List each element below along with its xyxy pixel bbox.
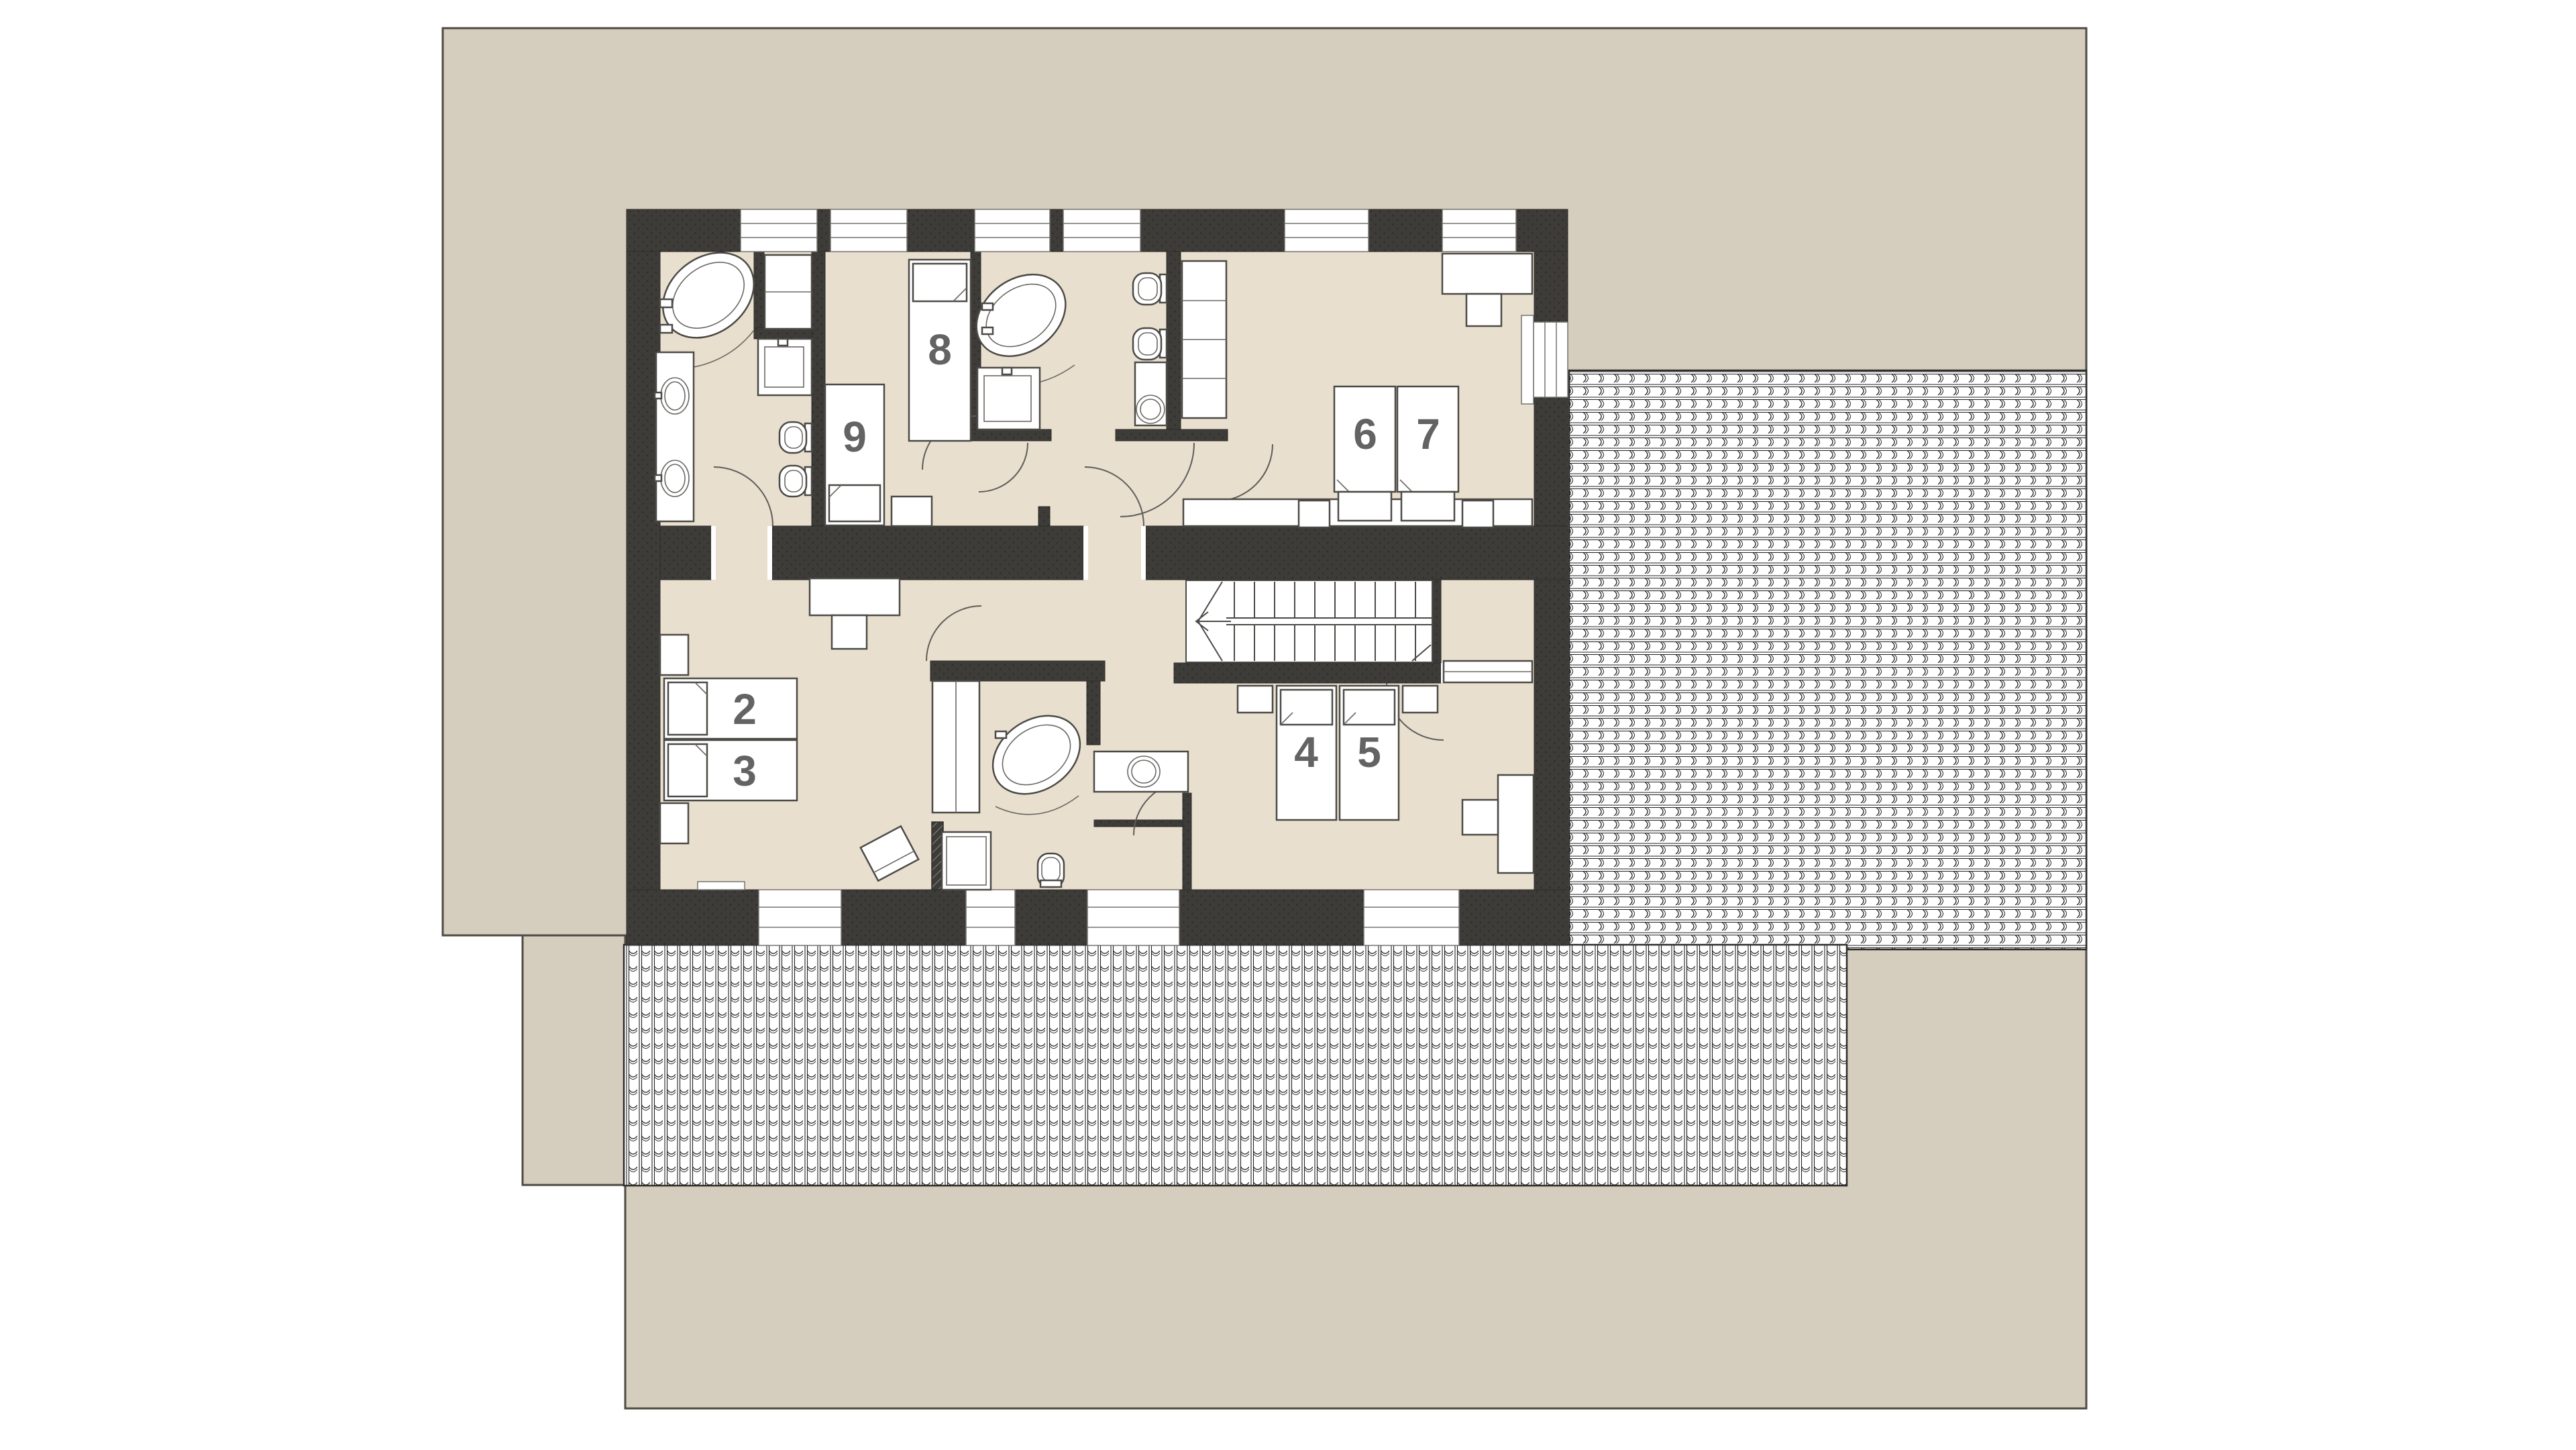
nightstand-icon bbox=[1462, 501, 1493, 527]
wall-bath2-top bbox=[930, 661, 1105, 681]
double-sink-counter bbox=[655, 352, 694, 521]
bed-label-2: 2 bbox=[733, 685, 757, 733]
wc-lower bbox=[1094, 752, 1188, 792]
wall-outer-left bbox=[627, 252, 660, 945]
toilet-icon bbox=[780, 422, 812, 453]
wall-central-c bbox=[1146, 526, 1568, 580]
staircase bbox=[1186, 580, 1432, 662]
toilet-icon bbox=[1133, 273, 1167, 305]
wall-bath-tl-niche bbox=[754, 252, 764, 327]
wall-stair-bottom bbox=[1174, 663, 1441, 683]
roof-right-tiles bbox=[1569, 370, 2086, 949]
toilet-icon bbox=[780, 466, 812, 497]
tub-faucet-icon bbox=[982, 327, 993, 334]
shower-icon bbox=[942, 832, 991, 890]
sink-icon bbox=[1135, 362, 1167, 425]
site-area-step bbox=[523, 935, 625, 1185]
bed-label-4: 4 bbox=[1294, 728, 1318, 776]
nightstand-icon bbox=[660, 635, 688, 675]
wall-wc-bottom bbox=[1116, 429, 1228, 441]
washbasin-icon bbox=[758, 339, 812, 395]
sink-counter-icon bbox=[1094, 752, 1188, 792]
tub-faucet-icon bbox=[996, 731, 1006, 738]
wall-central-b bbox=[772, 526, 1083, 580]
bed-label-5: 5 bbox=[1357, 728, 1381, 776]
wall-wc-bedroom67 bbox=[1167, 252, 1181, 429]
floor-plan-canvas: 2 3 4 5 6 7 8 9 bbox=[0, 0, 2576, 1450]
tub-faucet-icon bbox=[982, 303, 993, 310]
bed bbox=[664, 678, 797, 739]
wardrobe-icon bbox=[932, 681, 979, 813]
floor-plan-drawing: 2 3 4 5 6 7 8 9 bbox=[0, 0, 2576, 1450]
wall-central-a bbox=[660, 526, 711, 580]
tub-faucet-icon bbox=[660, 299, 672, 307]
bed-label-6: 6 bbox=[1353, 410, 1377, 458]
bed-label-8: 8 bbox=[928, 325, 952, 374]
closet-shelf bbox=[1444, 661, 1532, 682]
nightstand-icon bbox=[1238, 686, 1273, 713]
wall-bath-mid-bottom bbox=[971, 429, 1051, 441]
nightstand-icon bbox=[1299, 501, 1330, 527]
roof-bottom-tiles bbox=[624, 945, 1847, 1186]
nightstand-icon bbox=[1403, 686, 1438, 713]
wall-wc2-right bbox=[1183, 793, 1191, 890]
nightstand-icon bbox=[660, 803, 688, 843]
bed-label-9: 9 bbox=[843, 413, 867, 461]
wardrobe-icon bbox=[1182, 261, 1226, 418]
toilet-icon bbox=[1133, 328, 1167, 360]
wall-bath-tl-room89 bbox=[812, 252, 825, 527]
wall-hinge-stub bbox=[1038, 507, 1050, 526]
window-sill-bottom bbox=[698, 882, 745, 890]
cabinet-icon bbox=[765, 255, 812, 329]
bed bbox=[664, 740, 797, 800]
wall-wc2-h bbox=[1094, 820, 1191, 827]
wall-bath2-wc bbox=[1087, 681, 1100, 745]
window-sill-right bbox=[1521, 315, 1534, 404]
toilet-icon bbox=[1038, 853, 1064, 887]
bed-label-7: 7 bbox=[1416, 410, 1440, 458]
wc-top-right bbox=[1133, 273, 1167, 425]
washbasin-icon bbox=[977, 368, 1040, 429]
bed-label-3: 3 bbox=[733, 747, 757, 795]
side-table-icon bbox=[892, 497, 932, 526]
tub-faucet-icon bbox=[660, 325, 672, 333]
